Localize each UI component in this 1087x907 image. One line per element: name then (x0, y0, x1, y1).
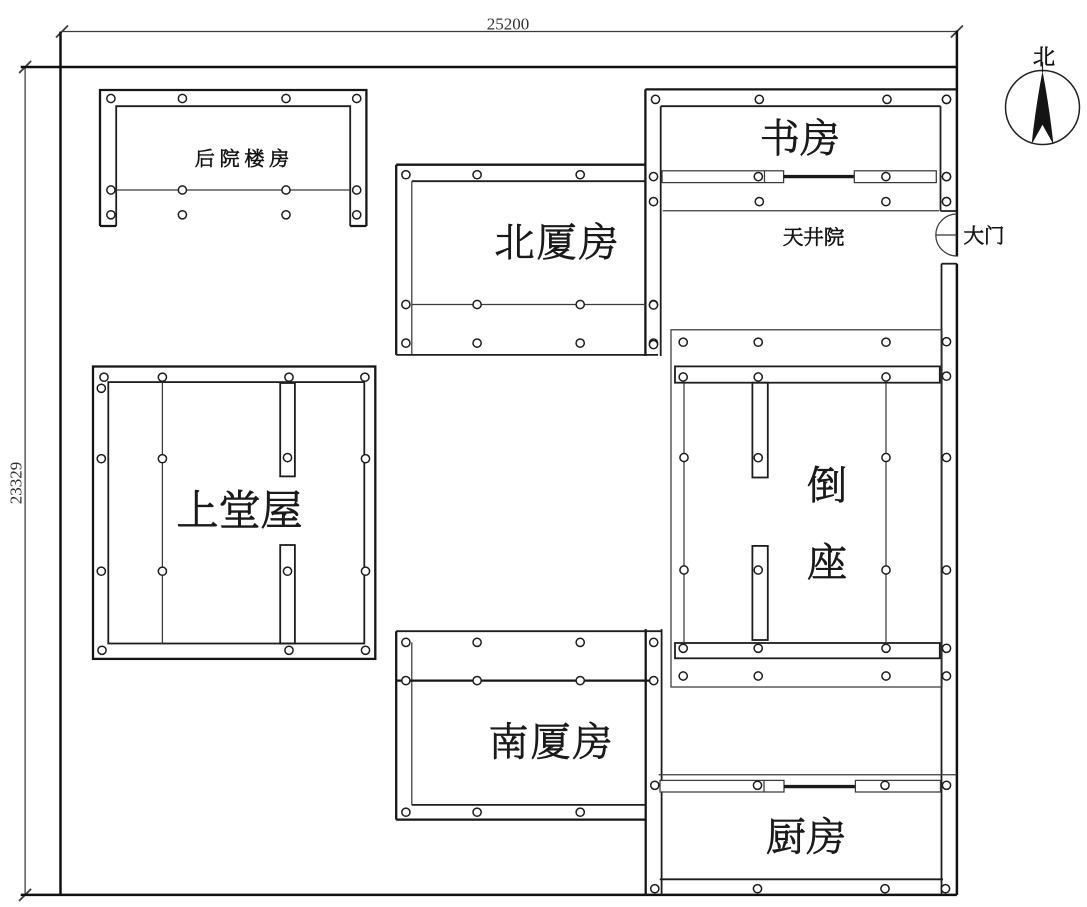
svg-text:23329: 23329 (7, 462, 26, 505)
svg-text:25200: 25200 (487, 15, 530, 34)
